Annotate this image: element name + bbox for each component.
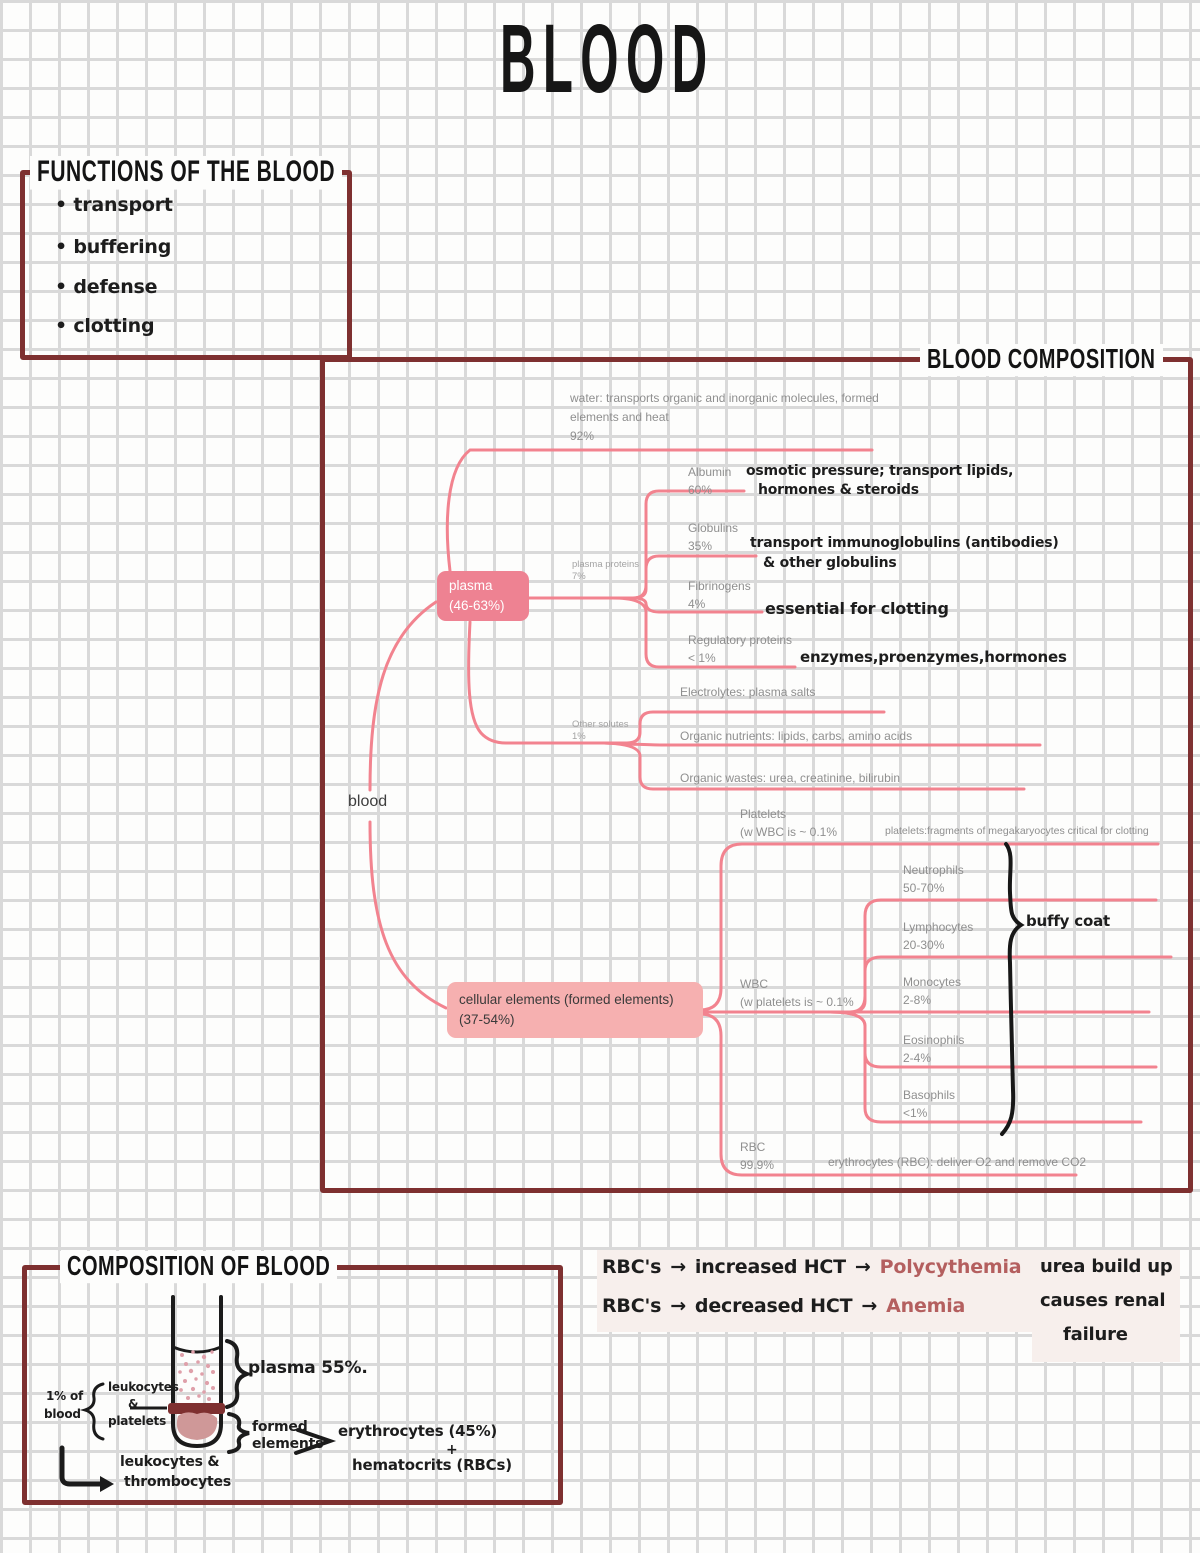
rbc-note: erythrocytes (RBC): deliver O2 and remov…	[828, 1156, 1086, 1169]
regulatory-label: Regulatory proteins	[688, 634, 792, 647]
branch-blood-cellular	[370, 822, 446, 1008]
composition-of-blood-title: COMPOSITION OF BLOOD	[60, 1251, 337, 1283]
branch-nutrients	[604, 743, 1040, 745]
water-label-2: elements and heat	[570, 411, 669, 424]
function-item-buffering: buffering	[55, 238, 171, 258]
rbc-label: RBC	[740, 1141, 765, 1154]
organic-nutrients-label: Organic nutrients: lipids, carbs, amino …	[680, 730, 912, 743]
neutrophils-label: Neutrophils	[903, 864, 964, 877]
platelets-note: platelets:fragments of megakaryocytes cr…	[885, 826, 1149, 837]
platelets-label: Platelets	[740, 808, 786, 821]
wbc-sub: (w platelets is ~ 0.1%	[740, 996, 854, 1009]
erythrocytes-label: erythrocytes (45%)	[338, 1424, 497, 1440]
functions-box-title: FUNCTIONS OF THE BLOOD	[30, 156, 342, 190]
rbc-pct: 99.9%	[740, 1159, 774, 1172]
brace-leukocytes: leukocytes	[108, 1381, 179, 1394]
eosinophils-label: Eosinophils	[903, 1034, 964, 1047]
grid-paper: BLOOD FUNCTIONS OF THE BLOOD transport b…	[0, 0, 1200, 1553]
globulins-note-2: & other globulins	[763, 556, 897, 571]
anemia-term: Anemia	[886, 1297, 965, 1317]
rbc-increase-note: RBC's → increased HCT → Polycythemia	[602, 1258, 1021, 1278]
hematocrits-label: hematocrits (RBCs)	[352, 1458, 512, 1474]
monocytes-label: Monocytes	[903, 976, 961, 989]
urea-note-3: failure	[1063, 1326, 1128, 1345]
formed-elements-label-2: elements	[252, 1437, 323, 1452]
rbc-decrease-mid: decreased HCT	[695, 1297, 852, 1317]
branch-eosinophils	[830, 1012, 1156, 1067]
monocytes-pct: 2-8%	[903, 994, 931, 1007]
mindmap-root-blood: blood	[348, 794, 387, 811]
function-item-clotting: clotting	[55, 317, 154, 337]
brace-ampersand: &	[128, 1398, 138, 1411]
function-item-transport: transport	[55, 196, 173, 216]
water-pct: 92%	[570, 430, 594, 443]
albumin-label: Albumin	[688, 466, 731, 479]
basophils-pct: <1%	[903, 1107, 927, 1120]
page-title: BLOOD	[500, 8, 700, 110]
globulins-pct: 35%	[688, 540, 712, 553]
urea-note-1: urea build up	[1040, 1258, 1173, 1277]
one-pct-blood-2: blood	[44, 1408, 81, 1421]
function-item-defense: defense	[55, 278, 157, 298]
cellular-node-pct: (37-54%)	[459, 1010, 691, 1030]
plasma-node: plasma (46-63%)	[437, 571, 529, 621]
cellular-node-label: cellular elements (formed elements)	[459, 990, 691, 1010]
rbc-decrease-subject: RBC's	[602, 1297, 661, 1317]
polycythemia-term: Polycythemia	[880, 1258, 1022, 1278]
fibrinogens-note: essential for clotting	[765, 601, 949, 618]
plasma-node-pct: (46-63%)	[449, 596, 517, 616]
right-arrow-icon: →	[670, 1258, 686, 1278]
rbc-increase-subject: RBC's	[602, 1258, 661, 1278]
one-pct-blood-1: 1% of	[46, 1390, 83, 1403]
buffy-coat-label: buffy coat	[1026, 914, 1110, 930]
right-arrow-icon: →	[861, 1297, 877, 1317]
lymphocytes-label: Lymphocytes	[903, 921, 973, 934]
electrolytes-label: Electrolytes: plasma salts	[680, 686, 815, 699]
eosinophils-pct: 2-4%	[903, 1052, 931, 1065]
right-arrow-icon: →	[855, 1258, 871, 1278]
branch-blood-plasma	[370, 602, 436, 790]
albumin-note-1: osmotic pressure; transport lipids,	[746, 464, 1013, 479]
rbc-increase-mid: increased HCT	[695, 1258, 846, 1278]
organic-wastes-label: Organic wastes: urea, creatinine, biliru…	[680, 772, 900, 785]
regulatory-note: enzymes,proenzymes,hormones	[800, 650, 1067, 666]
hook-note-1: leukocytes &	[120, 1455, 219, 1470]
blood-composition-title: BLOOD COMPOSITION	[920, 344, 1163, 376]
plasma-proteins-label: plasma proteins	[572, 560, 639, 570]
globulins-label: Globulins	[688, 522, 738, 535]
neutrophils-pct: 50-70%	[903, 882, 944, 895]
wbc-label: WBC	[740, 978, 768, 991]
formed-elements-label-1: formed	[252, 1420, 308, 1435]
platelets-sub: (w WBC is ~ 0.1%	[740, 826, 837, 839]
brace-platelets: platelets	[108, 1415, 166, 1428]
plasma-node-label: plasma	[449, 576, 517, 596]
other-solutes-pct: 1%	[572, 732, 586, 742]
cellular-elements-node: cellular elements (formed elements) (37-…	[447, 982, 703, 1038]
plasma-55-label: plasma 55%.	[248, 1360, 368, 1378]
right-arrow-icon: →	[670, 1297, 686, 1317]
branch-lymphocytes	[830, 957, 1171, 1012]
fibrinogens-label: Fibrinogens	[688, 580, 751, 593]
urea-note-2: causes renal	[1040, 1292, 1165, 1311]
basophils-label: Basophils	[903, 1089, 955, 1102]
hook-note-2: thrombocytes	[124, 1475, 231, 1490]
rbc-decrease-note: RBC's → decreased HCT → Anemia	[602, 1297, 965, 1317]
plasma-proteins-pct: 7%	[572, 572, 586, 582]
lymphocytes-pct: 20-30%	[903, 939, 944, 952]
globulins-note-1: transport immunoglobulins (antibodies)	[750, 536, 1059, 551]
other-solutes-label: Other solutes	[572, 720, 629, 730]
albumin-pct: 60%	[688, 484, 712, 497]
regulatory-pct: < 1%	[688, 652, 716, 665]
water-label-1: water: transports organic and inorganic …	[570, 392, 879, 405]
fibrinogens-pct: 4%	[688, 598, 705, 611]
buffy-coat-brace	[1002, 844, 1021, 1134]
albumin-note-2: hormones & steroids	[758, 483, 919, 498]
